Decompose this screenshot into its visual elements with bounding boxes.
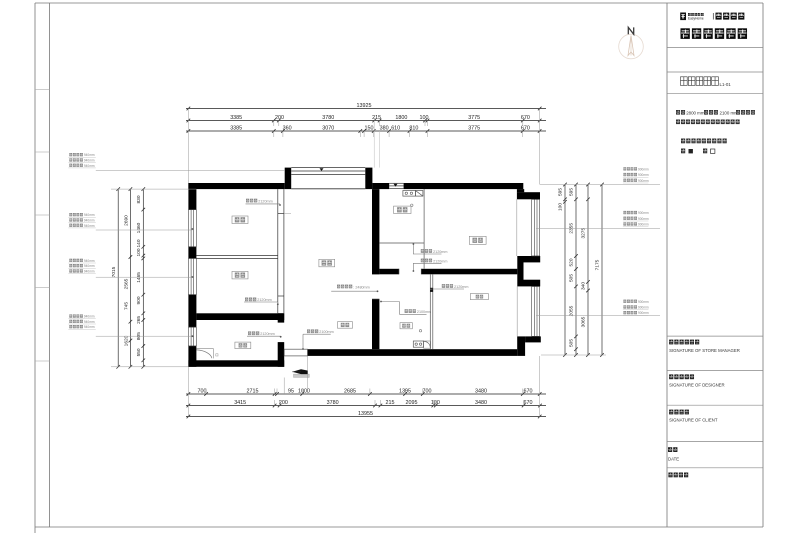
svg-text:2055: 2055 (569, 305, 575, 316)
svg-text:900mm: 900mm (638, 300, 649, 304)
svg-text:940mm: 940mm (84, 219, 95, 223)
svg-text:3780: 3780 (327, 400, 339, 406)
svg-text:670: 670 (524, 388, 533, 394)
svg-text:670: 670 (524, 400, 533, 406)
svg-text:215: 215 (386, 400, 395, 406)
svg-text:150: 150 (365, 125, 374, 131)
svg-text:3065: 3065 (581, 316, 587, 327)
svg-text:SIGNATURE OF CLIENT: SIGNATURE OF CLIENT (669, 418, 718, 423)
svg-text:940mm: 940mm (84, 213, 95, 217)
svg-text:2685: 2685 (344, 388, 356, 394)
svg-text:2120mm: 2120mm (433, 259, 447, 263)
svg-text:900mm: 900mm (638, 306, 649, 310)
svg-text:200: 200 (275, 115, 284, 121)
svg-text:520: 520 (569, 258, 575, 266)
svg-text:940mm: 940mm (84, 153, 95, 157)
svg-text:SIGNATURE OF STORE MANAGER: SIGNATURE OF STORE MANAGER (669, 348, 740, 353)
svg-text:EasyHome: EasyHome (688, 16, 704, 20)
svg-text:3385: 3385 (230, 125, 242, 131)
svg-text:7015: 7015 (111, 266, 117, 277)
svg-text:140: 140 (136, 239, 142, 247)
svg-text:900mm: 900mm (638, 173, 649, 177)
svg-text:505: 505 (569, 339, 575, 347)
svg-text:2800 mm,: 2800 mm, (686, 110, 706, 115)
svg-text:: 2480mm: : 2480mm (353, 285, 369, 289)
svg-text:745: 745 (123, 302, 129, 310)
svg-text:810: 810 (409, 125, 418, 131)
svg-text:940mm: 940mm (84, 259, 95, 263)
svg-text:940mm: 940mm (84, 325, 95, 329)
svg-text:2715: 2715 (247, 388, 259, 394)
svg-text:900mm: 900mm (638, 167, 649, 171)
svg-text:670: 670 (521, 115, 530, 121)
svg-text:3775: 3775 (468, 115, 480, 121)
svg-text:940mm: 940mm (84, 270, 95, 274)
svg-text:900mm: 900mm (638, 179, 649, 183)
svg-text:265: 265 (136, 316, 142, 324)
svg-text:3275: 3275 (581, 228, 587, 239)
svg-text:13925: 13925 (357, 103, 372, 109)
svg-text:940mm: 940mm (84, 315, 95, 319)
svg-text:805: 805 (136, 332, 142, 340)
svg-text:3480: 3480 (475, 400, 487, 406)
svg-text:940mm: 940mm (84, 264, 95, 268)
svg-text:2120mm: 2120mm (257, 298, 271, 302)
svg-text:2120mm: 2120mm (258, 199, 272, 203)
svg-text:550: 550 (136, 348, 142, 356)
svg-text:100: 100 (136, 248, 142, 256)
svg-text:3780: 3780 (322, 115, 334, 121)
svg-text:200: 200 (279, 400, 288, 406)
svg-text:L1-01: L1-01 (720, 82, 732, 87)
svg-text:3775: 3775 (468, 125, 480, 131)
svg-text:3385: 3385 (230, 115, 242, 121)
svg-text:900mm: 900mm (638, 223, 649, 227)
svg-text:900mm: 900mm (638, 217, 649, 221)
svg-text:3415: 3415 (234, 400, 246, 406)
svg-text:2690: 2690 (123, 215, 129, 226)
svg-text:7175: 7175 (595, 259, 601, 270)
svg-text:940mm: 940mm (84, 159, 95, 163)
svg-text:940mm: 940mm (84, 320, 95, 324)
svg-text:2355: 2355 (569, 223, 575, 234)
svg-text:SIGNATURE OF DESIGNER: SIGNATURE OF DESIGNER (669, 383, 725, 388)
svg-text:830: 830 (136, 195, 142, 203)
svg-text:940mm: 940mm (84, 224, 95, 228)
svg-text:100: 100 (420, 115, 429, 121)
svg-text:2120mm: 2120mm (260, 332, 274, 336)
svg-text:2095: 2095 (406, 400, 418, 406)
svg-text:2100mm: 2100mm (417, 310, 431, 314)
svg-text:215: 215 (372, 115, 381, 121)
svg-text:2100 mm: 2100 mm (720, 110, 739, 115)
svg-text:1460: 1460 (136, 222, 142, 233)
svg-text:670: 670 (521, 125, 530, 131)
svg-text:13955: 13955 (358, 411, 373, 417)
svg-text:100: 100 (431, 400, 440, 406)
svg-text:360: 360 (283, 125, 292, 131)
svg-text:900mm: 900mm (638, 311, 649, 315)
svg-text:2120mm: 2120mm (433, 250, 447, 254)
svg-text:380: 380 (380, 125, 389, 131)
svg-text:700: 700 (198, 388, 207, 394)
svg-text:1800: 1800 (395, 115, 407, 121)
svg-text:900mm: 900mm (638, 211, 649, 215)
svg-text:100: 100 (558, 203, 564, 211)
svg-text:2100mm: 2100mm (319, 330, 333, 334)
svg-text:1620: 1620 (123, 335, 129, 346)
svg-text:95: 95 (288, 388, 294, 394)
svg-text:2120mm: 2120mm (454, 285, 468, 289)
svg-text:900: 900 (136, 296, 142, 304)
svg-text:1000: 1000 (298, 388, 310, 394)
svg-text:3480: 3480 (475, 388, 487, 394)
svg-text:340: 340 (581, 282, 587, 290)
svg-text:700: 700 (423, 388, 432, 394)
svg-text:595: 595 (569, 188, 575, 196)
svg-text:610: 610 (391, 125, 400, 131)
svg-text:DATE: DATE (668, 457, 679, 462)
svg-text:595: 595 (558, 188, 564, 196)
svg-text:940mm: 940mm (84, 164, 95, 168)
svg-text:505: 505 (569, 274, 575, 282)
svg-text:3070: 3070 (322, 125, 334, 131)
svg-text:2565: 2565 (123, 278, 129, 289)
